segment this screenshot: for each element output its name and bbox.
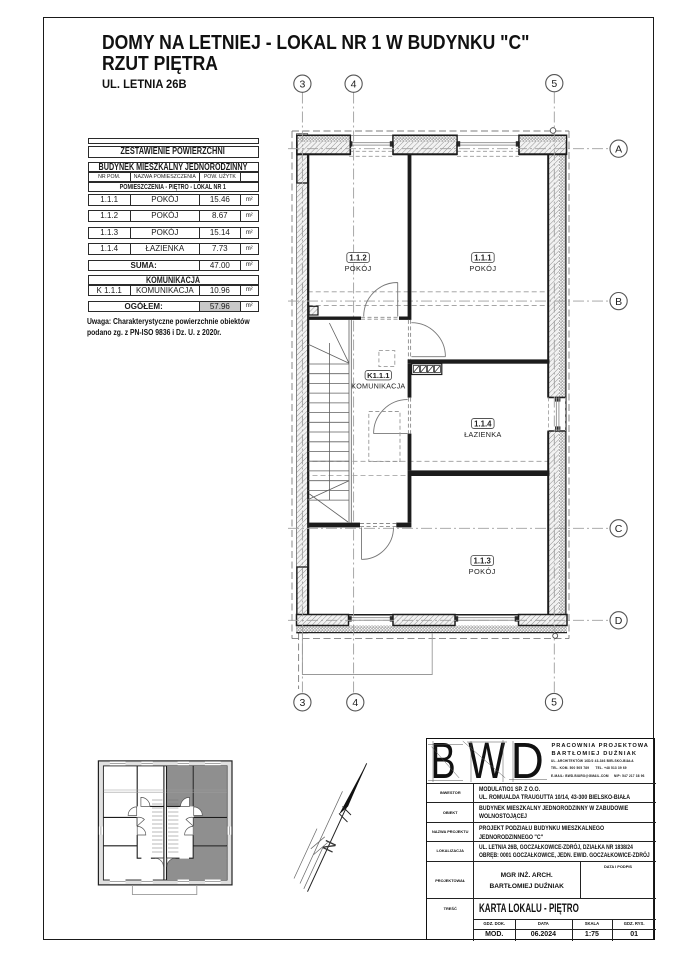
svg-text:5: 5	[551, 697, 557, 709]
svg-text:1.1.4: 1.1.4	[474, 420, 492, 429]
svg-text:A: A	[615, 143, 622, 155]
svg-text:B: B	[431, 739, 456, 782]
svg-text:W: W	[468, 739, 505, 782]
svg-text:4: 4	[351, 78, 357, 90]
svg-text:ŁAZIENKA: ŁAZIENKA	[464, 430, 501, 439]
svg-text:K1.1.1: K1.1.1	[367, 371, 390, 380]
svg-text:POKÓJ: POKÓJ	[469, 264, 496, 273]
svg-text:1.1.2: 1.1.2	[349, 254, 367, 263]
svg-text:C: C	[615, 523, 623, 535]
svg-text:POKÓJ: POKÓJ	[469, 567, 496, 576]
svg-text:POKÓJ: POKÓJ	[345, 264, 372, 273]
svg-text:3: 3	[299, 697, 305, 709]
svg-text:1.1.3: 1.1.3	[474, 557, 492, 566]
svg-text:1.1.1: 1.1.1	[474, 254, 492, 263]
svg-text:4: 4	[352, 697, 358, 709]
svg-text:5: 5	[551, 78, 557, 90]
svg-text:D: D	[615, 615, 623, 627]
svg-text:D: D	[511, 739, 544, 782]
svg-text:3: 3	[299, 78, 305, 90]
svg-text:KOMUNIKACJA: KOMUNIKACJA	[351, 381, 405, 390]
svg-text:B: B	[615, 296, 622, 308]
